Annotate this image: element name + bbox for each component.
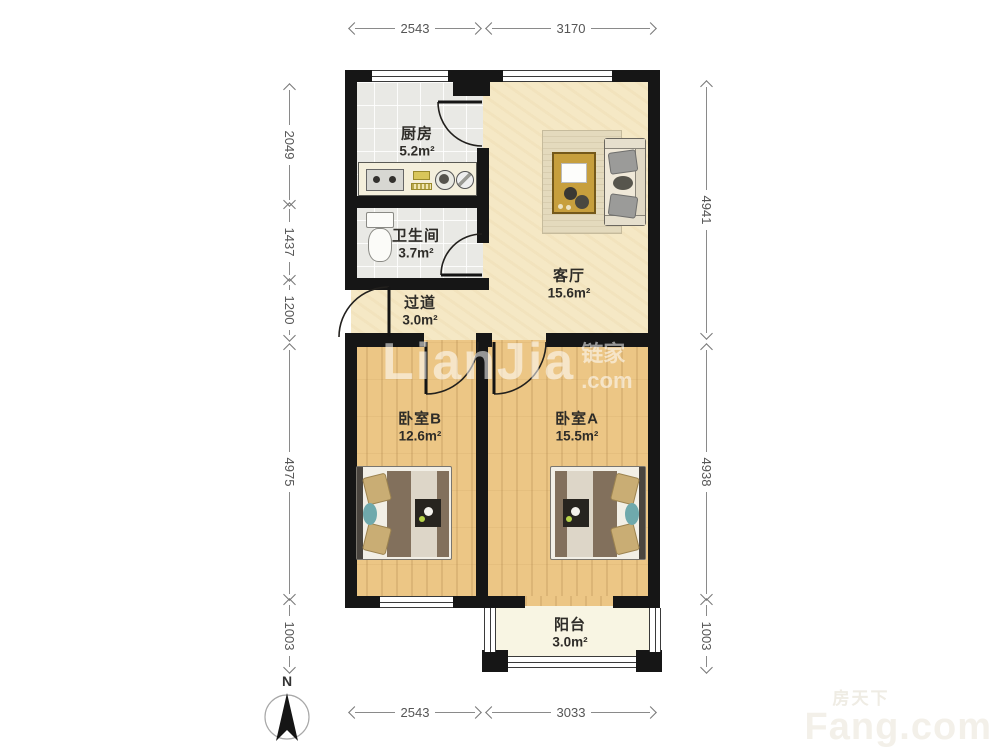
room-label-bedroom-b: 卧室B 12.6m² bbox=[398, 411, 442, 446]
dim-left-4: 4975 bbox=[281, 345, 299, 599]
dim-bottom-2: 3033 bbox=[487, 703, 655, 721]
arrowhead-icon bbox=[284, 83, 297, 96]
arrowhead-icon bbox=[284, 329, 297, 342]
room-label-hallway: 过道 3.0m² bbox=[402, 295, 437, 330]
room-label-balcony: 阳台 3.0m² bbox=[552, 617, 587, 652]
room-label-kitchen: 厨房 5.2m² bbox=[399, 126, 434, 161]
arrowhead-icon bbox=[284, 598, 297, 611]
arrowhead-icon bbox=[701, 661, 714, 674]
arrowhead-icon bbox=[701, 80, 714, 93]
arrowhead-icon bbox=[701, 343, 714, 356]
dim-left-1: 2049 bbox=[281, 85, 299, 205]
arrowhead-icon bbox=[348, 22, 361, 35]
dim-top-1: 2543 bbox=[350, 19, 480, 37]
north-compass-icon bbox=[265, 693, 309, 741]
arrowhead-icon bbox=[284, 343, 297, 356]
door-swing-overlay bbox=[0, 0, 1000, 750]
dim-right-2: 4938 bbox=[698, 345, 716, 599]
arrowhead-icon bbox=[485, 22, 498, 35]
room-label-bedroom-a: 卧室A 15.5m² bbox=[555, 411, 599, 446]
dim-bottom-1: 2543 bbox=[350, 703, 480, 721]
dim-left-5: 1003 bbox=[281, 600, 299, 672]
dim-top-2: 3170 bbox=[487, 19, 655, 37]
room-label-bathroom: 卫生间 3.7m² bbox=[392, 228, 440, 263]
compass-north-label: N bbox=[282, 673, 292, 689]
arrowhead-icon bbox=[701, 598, 714, 611]
arrowhead-icon bbox=[644, 706, 657, 719]
floor-plan-canvas: N 厨房 5.2m² 卫生间 3.7m² 过道 3.0m² 客厅 15.6m² … bbox=[0, 0, 1000, 750]
dim-left-3: 1200 bbox=[281, 280, 299, 340]
arrowhead-icon bbox=[644, 22, 657, 35]
arrowhead-icon bbox=[485, 706, 498, 719]
arrowhead-icon bbox=[469, 22, 482, 35]
arrowhead-icon bbox=[284, 202, 297, 215]
arrowhead-icon bbox=[284, 278, 297, 291]
arrowhead-icon bbox=[284, 661, 297, 674]
arrowhead-icon bbox=[348, 706, 361, 719]
kitchen-door-arc bbox=[438, 102, 482, 146]
dim-right-1: 4941 bbox=[698, 82, 716, 338]
room-label-living-room: 客厅 15.6m² bbox=[548, 268, 591, 303]
dim-right-3: 1003 bbox=[698, 600, 716, 672]
dim-left-2: 1437 bbox=[281, 204, 299, 280]
entry-door-arc bbox=[339, 287, 389, 337]
arrowhead-icon bbox=[469, 706, 482, 719]
bedroom-b-door-arc bbox=[426, 342, 478, 394]
bedroom-a-door-arc bbox=[494, 342, 546, 394]
bathroom-door-arc bbox=[441, 234, 482, 275]
arrowhead-icon bbox=[701, 327, 714, 340]
